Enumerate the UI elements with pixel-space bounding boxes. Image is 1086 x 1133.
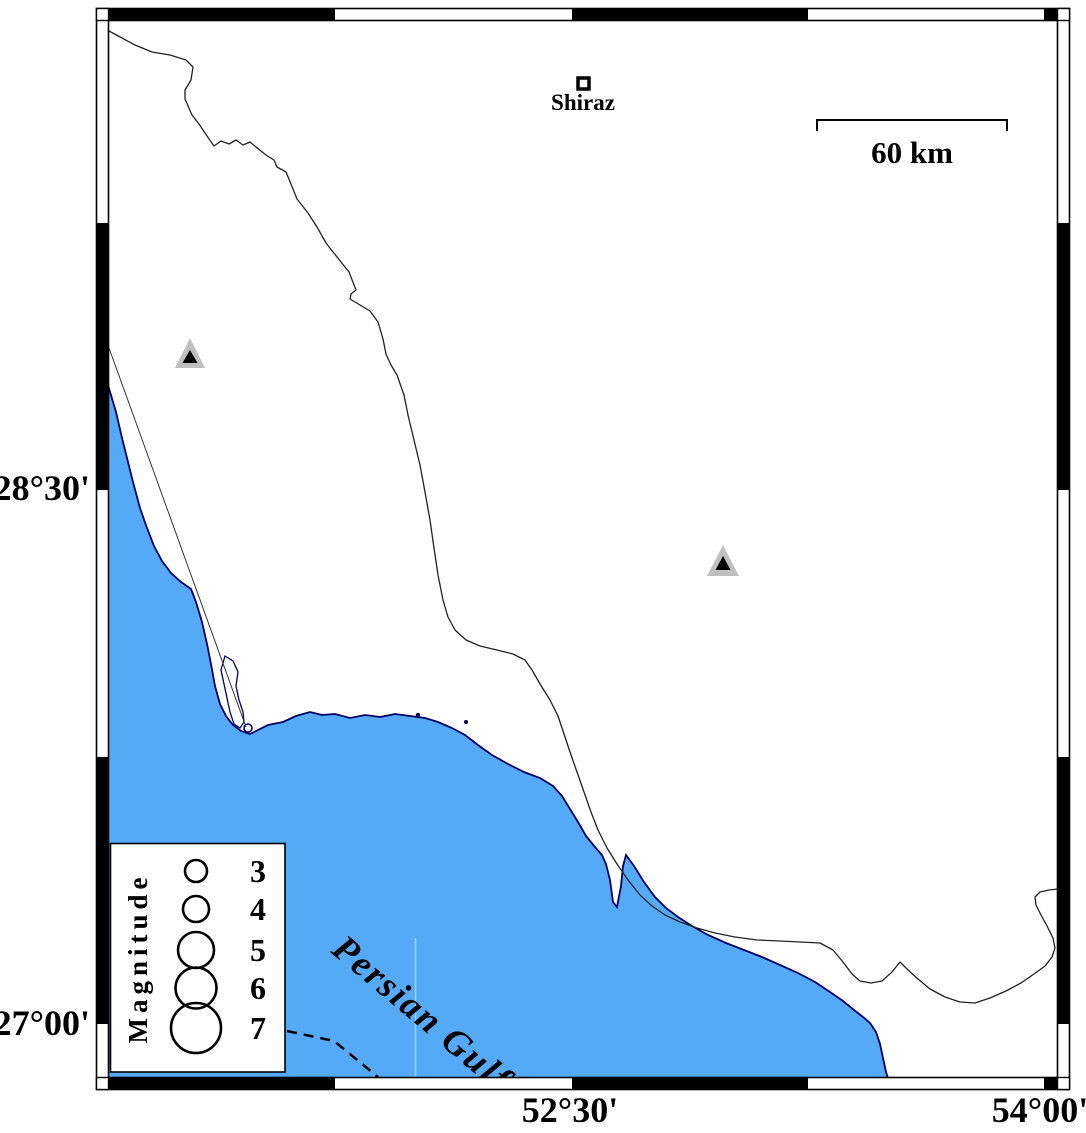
city-marker-square [578, 78, 589, 89]
axis-label-lat-1: 28°30' [0, 468, 90, 508]
axis-label-lon-2: 54°00' [992, 1090, 1086, 1128]
magnitude-label: 4 [250, 891, 266, 927]
axis-label-lat-2: 27°00' [0, 1003, 90, 1043]
magnitude-label: 5 [250, 932, 266, 968]
map-canvas: Persian Gulf Shiraz 60 km Magnitude 3 4 [0, 0, 1086, 1133]
magnitude-label: 7 [250, 1010, 266, 1046]
legend-box: Magnitude 3 4 5 6 7 [111, 844, 286, 1073]
scalebar-label: 60 km [871, 135, 953, 170]
islet-dot [464, 720, 468, 724]
islet-dot [416, 713, 420, 717]
station-triangle-icon [175, 338, 205, 368]
magnitude-label: 3 [250, 853, 266, 889]
station-triangle-icon [707, 545, 739, 576]
axis-label-lon-1: 52°30' [522, 1090, 618, 1128]
scalebar [817, 120, 1007, 131]
magnitude-label: 6 [250, 970, 266, 1006]
city-label: Shiraz [551, 90, 615, 115]
legend-title: Magnitude [123, 872, 153, 1043]
